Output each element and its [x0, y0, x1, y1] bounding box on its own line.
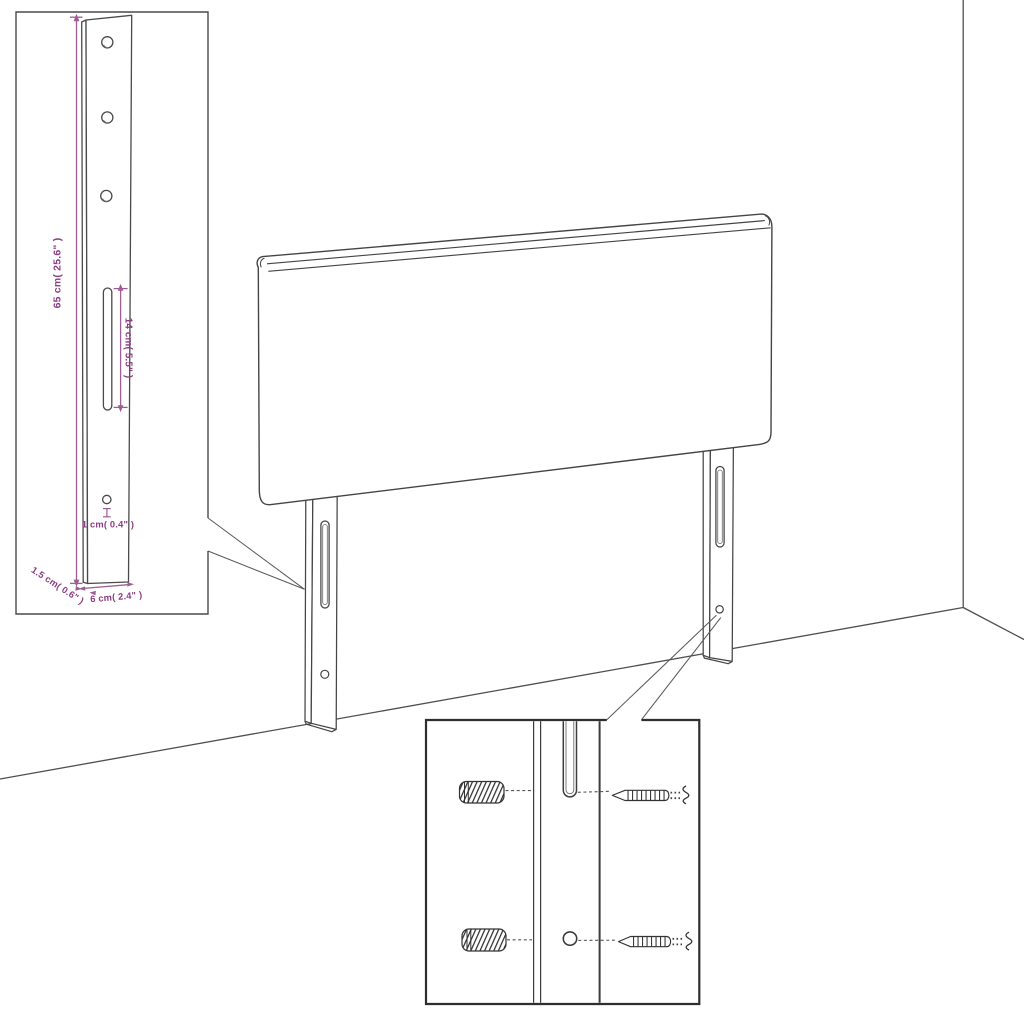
detail-leg-hole-1	[102, 37, 113, 48]
dimension-6cm-label: 6 cm( 2.4" )	[90, 590, 143, 605]
detail-leg-slot	[103, 288, 111, 410]
leg-detail-inset: 65 cm( 25.6" ) 14 cm( 5.5" ) 1 cm( 0.4" …	[16, 12, 208, 614]
mounting-detail-inset	[426, 720, 699, 1004]
left-leg-slot	[321, 521, 329, 608]
screw-icon	[619, 932, 692, 950]
detail-leg-small-hole	[103, 495, 111, 503]
right-leg	[703, 440, 733, 664]
floor-line-left	[0, 608, 963, 780]
floor-line-right	[963, 608, 1024, 640]
leg-detail-callout-lines	[208, 518, 305, 589]
wall-plug-icon	[462, 929, 506, 951]
dimension-line	[81, 584, 132, 588]
detail-slot	[563, 721, 576, 797]
diagram-page: 65 cm( 25.6" ) 14 cm( 5.5" ) 1 cm( 0.4" …	[0, 0, 1024, 1024]
dimension-65cm-label: 65 cm( 25.6" )	[52, 238, 64, 309]
wall-plug-icon	[460, 782, 505, 804]
callout-line	[642, 618, 721, 720]
dimension-14cm-label: 14 cm( 5.5" )	[123, 318, 134, 379]
detail-leg-hole-2	[102, 112, 113, 123]
detail-leg-hole-3	[101, 190, 112, 201]
callout-line	[208, 518, 305, 589]
dimension-1-5cm-label: 1.5 cm( 0.6" )	[30, 565, 86, 606]
dimension-6cm: 6 cm( 2.4" )	[79, 582, 143, 604]
left-leg-hole	[321, 670, 329, 678]
right-leg-slot	[716, 467, 724, 548]
headboard-panel	[257, 214, 772, 505]
callout-line	[208, 551, 305, 589]
diagram-canvas: 65 cm( 25.6" ) 14 cm( 5.5" ) 1 cm( 0.4" …	[0, 0, 1024, 1024]
detail-hole	[563, 932, 576, 945]
dimension-65cm: 65 cm( 25.6" )	[52, 14, 83, 587]
dimension-1cm-label: 1 cm( 0.4" )	[82, 520, 134, 530]
right-leg-hole	[716, 606, 723, 613]
leader-line	[578, 791, 611, 792]
screw-icon	[612, 786, 689, 804]
